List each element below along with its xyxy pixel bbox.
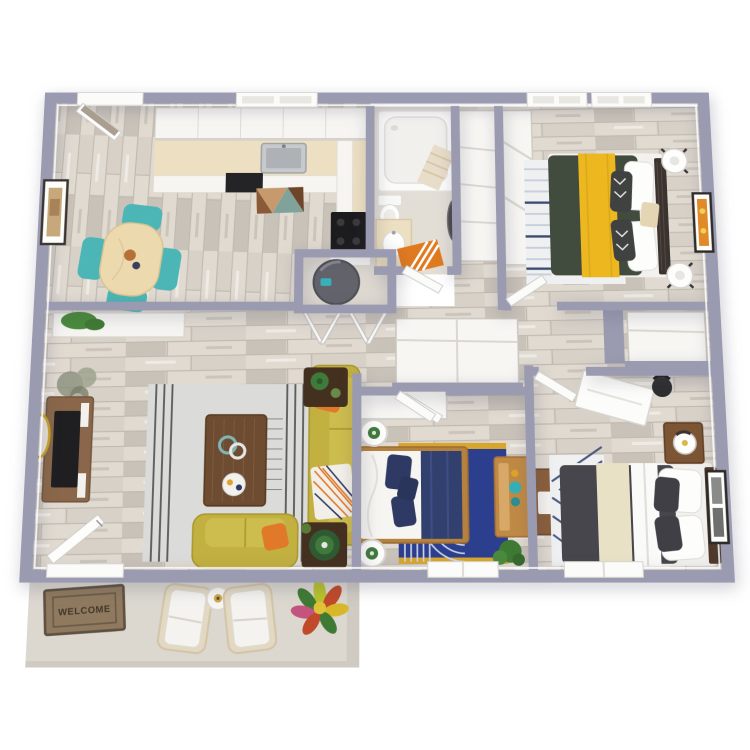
end-table-plant bbox=[303, 367, 348, 407]
wall-stub bbox=[603, 303, 625, 363]
patio-armchair bbox=[156, 583, 213, 654]
wall-living-bedroom2 bbox=[356, 373, 357, 572]
round-side-table bbox=[361, 420, 387, 446]
bed-throw-pillow bbox=[640, 202, 660, 228]
mustard-loveseat bbox=[192, 514, 298, 568]
navy-blanket bbox=[421, 451, 463, 539]
wall-bedroom1-west bbox=[498, 105, 502, 310]
welcome-mat: WELCOME bbox=[44, 585, 124, 635]
bedroom1-window bbox=[527, 93, 587, 107]
bedroom3-bed bbox=[559, 463, 721, 566]
plan-perspective-wrap: WELCOME bbox=[0, 25, 750, 750]
patio-slab-shadow bbox=[347, 574, 360, 667]
wall-bath-closet bbox=[455, 105, 457, 272]
tv-console bbox=[42, 397, 94, 502]
dining-wall-art bbox=[41, 180, 68, 244]
patio-edge bbox=[25, 661, 359, 667]
nightstand-lamp bbox=[664, 423, 704, 463]
oak-dresser bbox=[494, 457, 530, 537]
end-table-plant bbox=[300, 522, 347, 568]
planter-half-wall bbox=[52, 312, 185, 337]
upper-cabinets bbox=[155, 108, 370, 141]
bedroom2-bed bbox=[353, 447, 468, 543]
accent-pillow bbox=[654, 515, 684, 553]
bedroom3-closet bbox=[627, 312, 707, 366]
floor-plan-scene: WELCOME bbox=[0, 0, 750, 750]
kitchen-sink bbox=[261, 143, 306, 172]
cream-runner bbox=[596, 463, 633, 566]
throw-blanket bbox=[310, 463, 358, 522]
floor-plan-render: WELCOME bbox=[0, 25, 750, 750]
bedroom1-bed bbox=[548, 154, 671, 278]
kitchen-window bbox=[236, 93, 317, 107]
tv bbox=[51, 411, 81, 488]
bedroom1-window bbox=[591, 93, 651, 107]
coffee-table bbox=[204, 415, 267, 506]
black-range bbox=[331, 212, 367, 253]
patio-armchair bbox=[223, 583, 277, 654]
wall-bedroom2-bedroom3 bbox=[529, 365, 534, 572]
kitchen-rug bbox=[256, 187, 304, 214]
tripod-lamp bbox=[661, 149, 687, 173]
water-heater-valve bbox=[320, 278, 331, 286]
orange-pillow bbox=[261, 522, 290, 551]
water-heater bbox=[313, 260, 359, 304]
bedroom3-window bbox=[564, 562, 643, 578]
bedroom3-wall-art bbox=[707, 471, 729, 543]
bedroom2-window bbox=[428, 562, 499, 578]
bathtub bbox=[378, 111, 456, 192]
patio: WELCOME bbox=[25, 574, 359, 667]
accent-pillow bbox=[653, 476, 680, 513]
bedroom1-wall-art bbox=[693, 193, 714, 251]
tripod-lamp bbox=[667, 263, 694, 288]
round-side-table bbox=[358, 540, 385, 567]
